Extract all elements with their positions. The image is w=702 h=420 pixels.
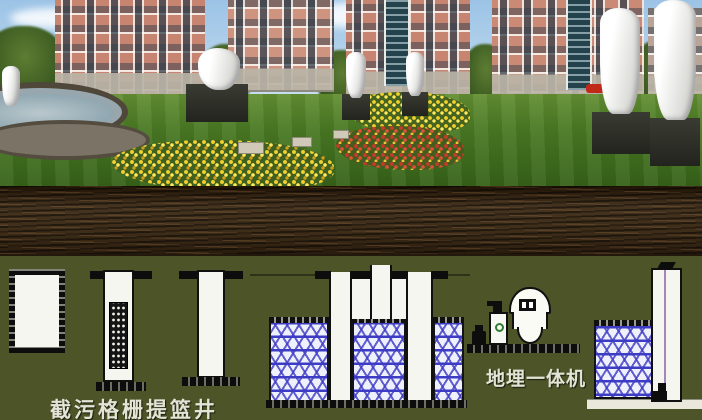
right-media-block <box>594 326 655 400</box>
pump-head <box>475 325 483 332</box>
tank-media-section <box>433 322 464 401</box>
tank-bottom-slab <box>266 400 467 408</box>
right-foundation-strip <box>587 399 702 409</box>
tank-cap-segment <box>431 271 448 279</box>
submersible-pump-body <box>653 391 667 401</box>
dosing-logo <box>495 323 504 332</box>
statue <box>654 0 696 120</box>
tank-riser <box>329 272 352 401</box>
well-shaft <box>197 270 225 378</box>
dosing-device <box>489 312 508 345</box>
apartment-building <box>228 0 334 92</box>
tank-riser <box>406 272 433 401</box>
statue <box>406 52 424 96</box>
outlet-column <box>651 268 682 402</box>
ground-surface-line <box>250 274 318 276</box>
shaft-base <box>96 382 146 391</box>
dosing-pump-spout <box>487 301 495 306</box>
garden-bench <box>292 137 312 147</box>
label-grille-basket-well: 截污格栅提篮井 <box>50 394 218 420</box>
tank-cap-segment <box>390 271 408 279</box>
glass-stairwell <box>566 0 592 90</box>
statue <box>600 8 640 114</box>
illustration-root: 截污格栅提篮井 地埋一体机 <box>0 0 702 420</box>
inspection-well <box>9 269 65 353</box>
media-hatch-top <box>594 320 655 326</box>
garden-bench <box>333 130 349 139</box>
filter-vessel-foot <box>517 327 543 344</box>
media-hatch-top <box>433 317 464 323</box>
media-hatch-top <box>269 317 329 323</box>
tank-cap-segment <box>350 271 372 279</box>
filter-vessel-window <box>519 299 536 311</box>
statue <box>2 66 20 106</box>
statue <box>346 52 366 98</box>
soil-band <box>0 186 702 256</box>
garden-bench <box>238 142 264 154</box>
shaft-base <box>182 377 240 386</box>
pump-icon <box>472 331 486 345</box>
underground-diagram: 截污格栅提篮井 地埋一体机 <box>0 256 702 420</box>
ground-surface-line <box>446 274 470 276</box>
label-buried-unit: 地埋一体机 <box>486 364 586 391</box>
apartment-building <box>55 0 205 98</box>
statue-pedestal <box>650 118 700 166</box>
grille-basket <box>109 302 128 369</box>
statue-pedestal <box>592 112 650 154</box>
photo-scene <box>0 0 702 192</box>
tank-media-section <box>352 322 406 401</box>
tank-cap-segment <box>315 271 331 279</box>
equipment-slab <box>467 344 580 353</box>
riser-pipe <box>664 270 666 400</box>
tank-mid-riser <box>370 265 392 319</box>
tank-media-section <box>269 322 329 401</box>
statue <box>198 48 240 90</box>
